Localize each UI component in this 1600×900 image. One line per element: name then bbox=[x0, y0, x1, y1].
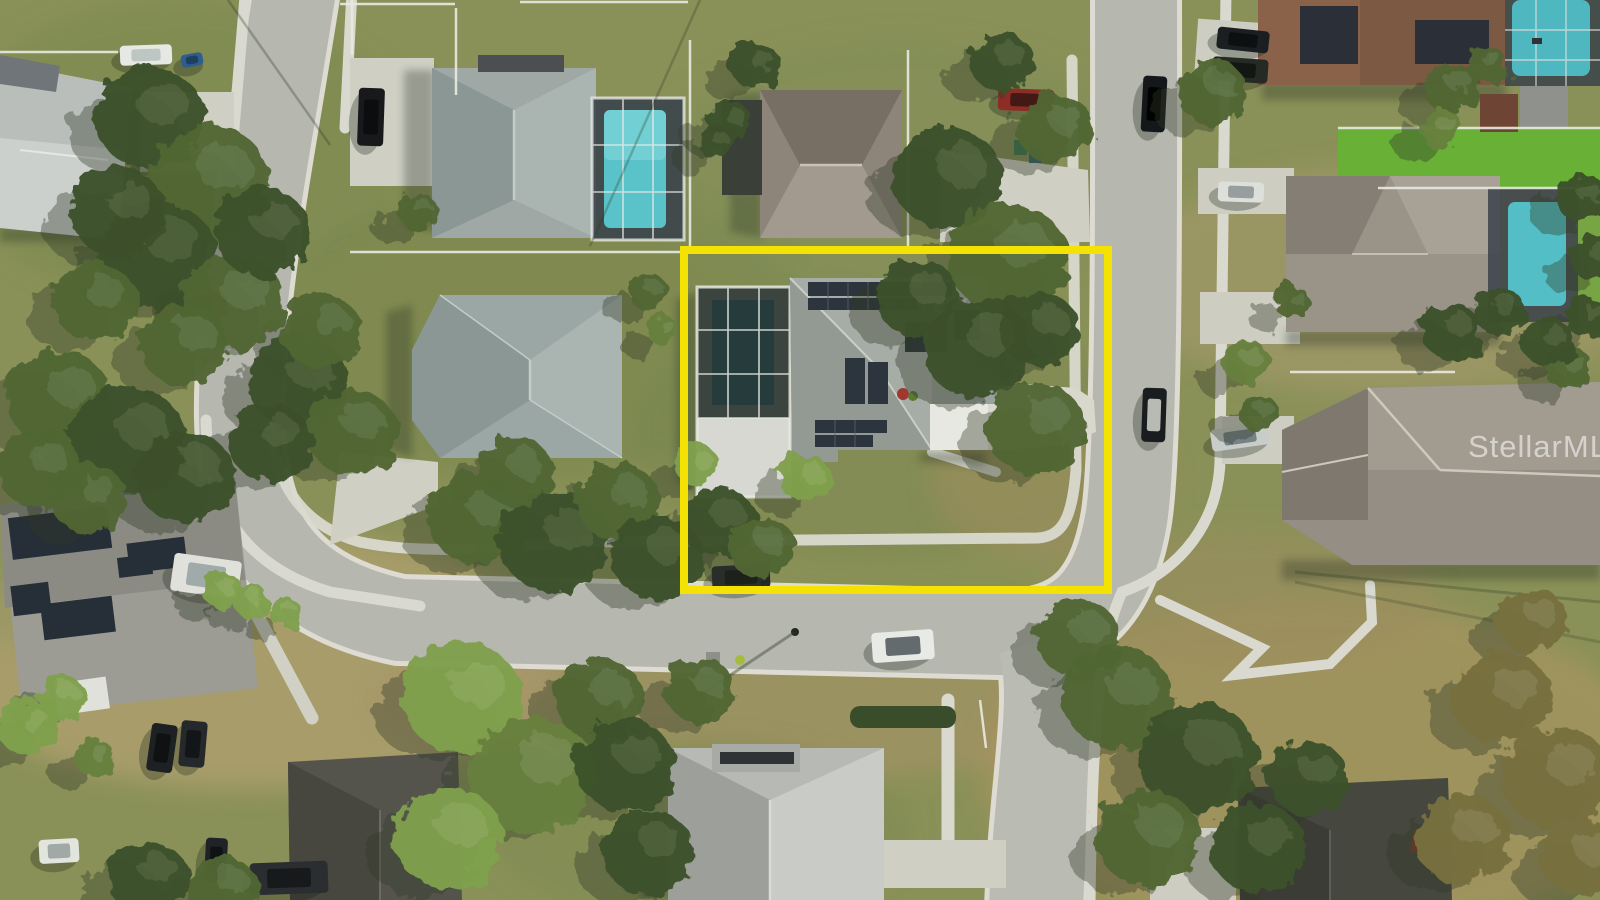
tree-highlight bbox=[1047, 104, 1081, 133]
vehicle-glass bbox=[131, 48, 161, 61]
tree-highlight bbox=[30, 442, 68, 474]
tree-highlight bbox=[1495, 296, 1518, 316]
tree-highlight bbox=[1032, 305, 1068, 335]
tree-highlight bbox=[1436, 114, 1456, 131]
tree-highlight bbox=[639, 823, 680, 858]
tree-highlight bbox=[1484, 52, 1502, 67]
tree-highlight bbox=[1241, 347, 1263, 365]
tree-highlight bbox=[91, 745, 109, 760]
tree-highlight bbox=[1025, 397, 1070, 435]
tree-highlight bbox=[1248, 818, 1291, 854]
shed-gray bbox=[1520, 86, 1568, 128]
pool-under-screen bbox=[712, 300, 774, 405]
tree-highlight bbox=[693, 668, 725, 695]
tree-highlight bbox=[176, 447, 221, 485]
tree-highlight bbox=[615, 734, 660, 772]
tree-highlight bbox=[910, 272, 948, 304]
porch-windows bbox=[720, 752, 794, 764]
vehicle-glass bbox=[267, 868, 311, 889]
tree-highlight bbox=[1205, 70, 1237, 97]
tree-highlight bbox=[750, 49, 773, 68]
tree-highlight bbox=[1525, 598, 1557, 625]
tree-highlight bbox=[48, 365, 95, 405]
shed-brown bbox=[1480, 94, 1518, 132]
tree-highlight bbox=[937, 143, 987, 185]
tree-highlight bbox=[215, 866, 247, 893]
driveway-house10 bbox=[878, 840, 1006, 888]
tree-highlight bbox=[414, 199, 432, 214]
swimming-pool-4 bbox=[1512, 0, 1590, 76]
tree-highlight bbox=[80, 474, 114, 503]
vehicle-glass bbox=[185, 730, 202, 759]
vehicle-glass bbox=[1147, 399, 1162, 432]
watermark: StellarMLS bbox=[1468, 429, 1600, 464]
tree-highlight bbox=[660, 320, 674, 332]
tree-highlight bbox=[140, 853, 176, 883]
tree-highlight bbox=[343, 403, 384, 438]
tree-highlight bbox=[726, 108, 746, 125]
tree-highlight bbox=[1543, 326, 1566, 346]
tree-highlight bbox=[693, 451, 713, 468]
tree-highlight bbox=[1547, 743, 1597, 785]
tree-highlight bbox=[87, 276, 125, 308]
tree-highlight bbox=[282, 602, 296, 614]
tree-highlight bbox=[1186, 720, 1240, 766]
vehicle-glass bbox=[363, 99, 379, 134]
tree-highlight bbox=[800, 462, 823, 482]
solar-array bbox=[1300, 6, 1358, 64]
tree-highlight bbox=[248, 591, 264, 605]
tree-highlight bbox=[1452, 808, 1495, 844]
vehicle-glass bbox=[1228, 186, 1254, 199]
aerial-photo-svg: StellarMLS bbox=[0, 0, 1600, 900]
tree-highlight bbox=[1446, 313, 1473, 336]
tree-highlight bbox=[108, 182, 151, 218]
vehicle-glass bbox=[885, 636, 921, 656]
aerial-photo: StellarMLS bbox=[0, 0, 1600, 900]
tree-highlight bbox=[176, 317, 217, 351]
house-8-center-left bbox=[412, 295, 622, 458]
tree-highlight bbox=[262, 416, 300, 448]
tree-highlight bbox=[1070, 612, 1108, 644]
tree-highlight bbox=[1577, 182, 1600, 202]
tree-shadow bbox=[243, 616, 276, 641]
tree-highlight bbox=[755, 527, 786, 553]
tree-highlight bbox=[139, 83, 189, 125]
tree-highlight bbox=[57, 683, 79, 701]
tree-highlight bbox=[1138, 805, 1185, 845]
tree-highlight bbox=[519, 735, 577, 784]
tree-highlight bbox=[610, 476, 648, 508]
tree-highlight bbox=[1300, 753, 1336, 783]
tree-highlight bbox=[437, 803, 487, 845]
tree-highlight bbox=[591, 672, 632, 706]
tree-highlight bbox=[450, 660, 504, 706]
tree-highlight bbox=[644, 279, 662, 294]
hedge-row bbox=[850, 706, 956, 728]
vehicle-glass bbox=[47, 843, 70, 859]
tree-highlight bbox=[1492, 667, 1537, 705]
tree-highlight bbox=[710, 498, 744, 527]
tree-highlight bbox=[196, 143, 252, 190]
tree-highlight bbox=[711, 131, 727, 145]
tree-highlight bbox=[1254, 399, 1272, 414]
tree-highlight bbox=[252, 202, 295, 238]
tree-highlight bbox=[312, 305, 348, 335]
tree-shadow bbox=[621, 334, 654, 359]
tree-highlight bbox=[218, 577, 236, 592]
house-4-brown-solar bbox=[1258, 0, 1600, 86]
tree-highlight bbox=[507, 448, 541, 477]
tree-highlight bbox=[996, 42, 1025, 66]
tree-highlight bbox=[1107, 663, 1157, 705]
tree-highlight bbox=[1446, 70, 1471, 91]
tree-highlight bbox=[1288, 291, 1304, 305]
utility-marker bbox=[735, 655, 745, 665]
tree-highlight bbox=[996, 220, 1050, 266]
